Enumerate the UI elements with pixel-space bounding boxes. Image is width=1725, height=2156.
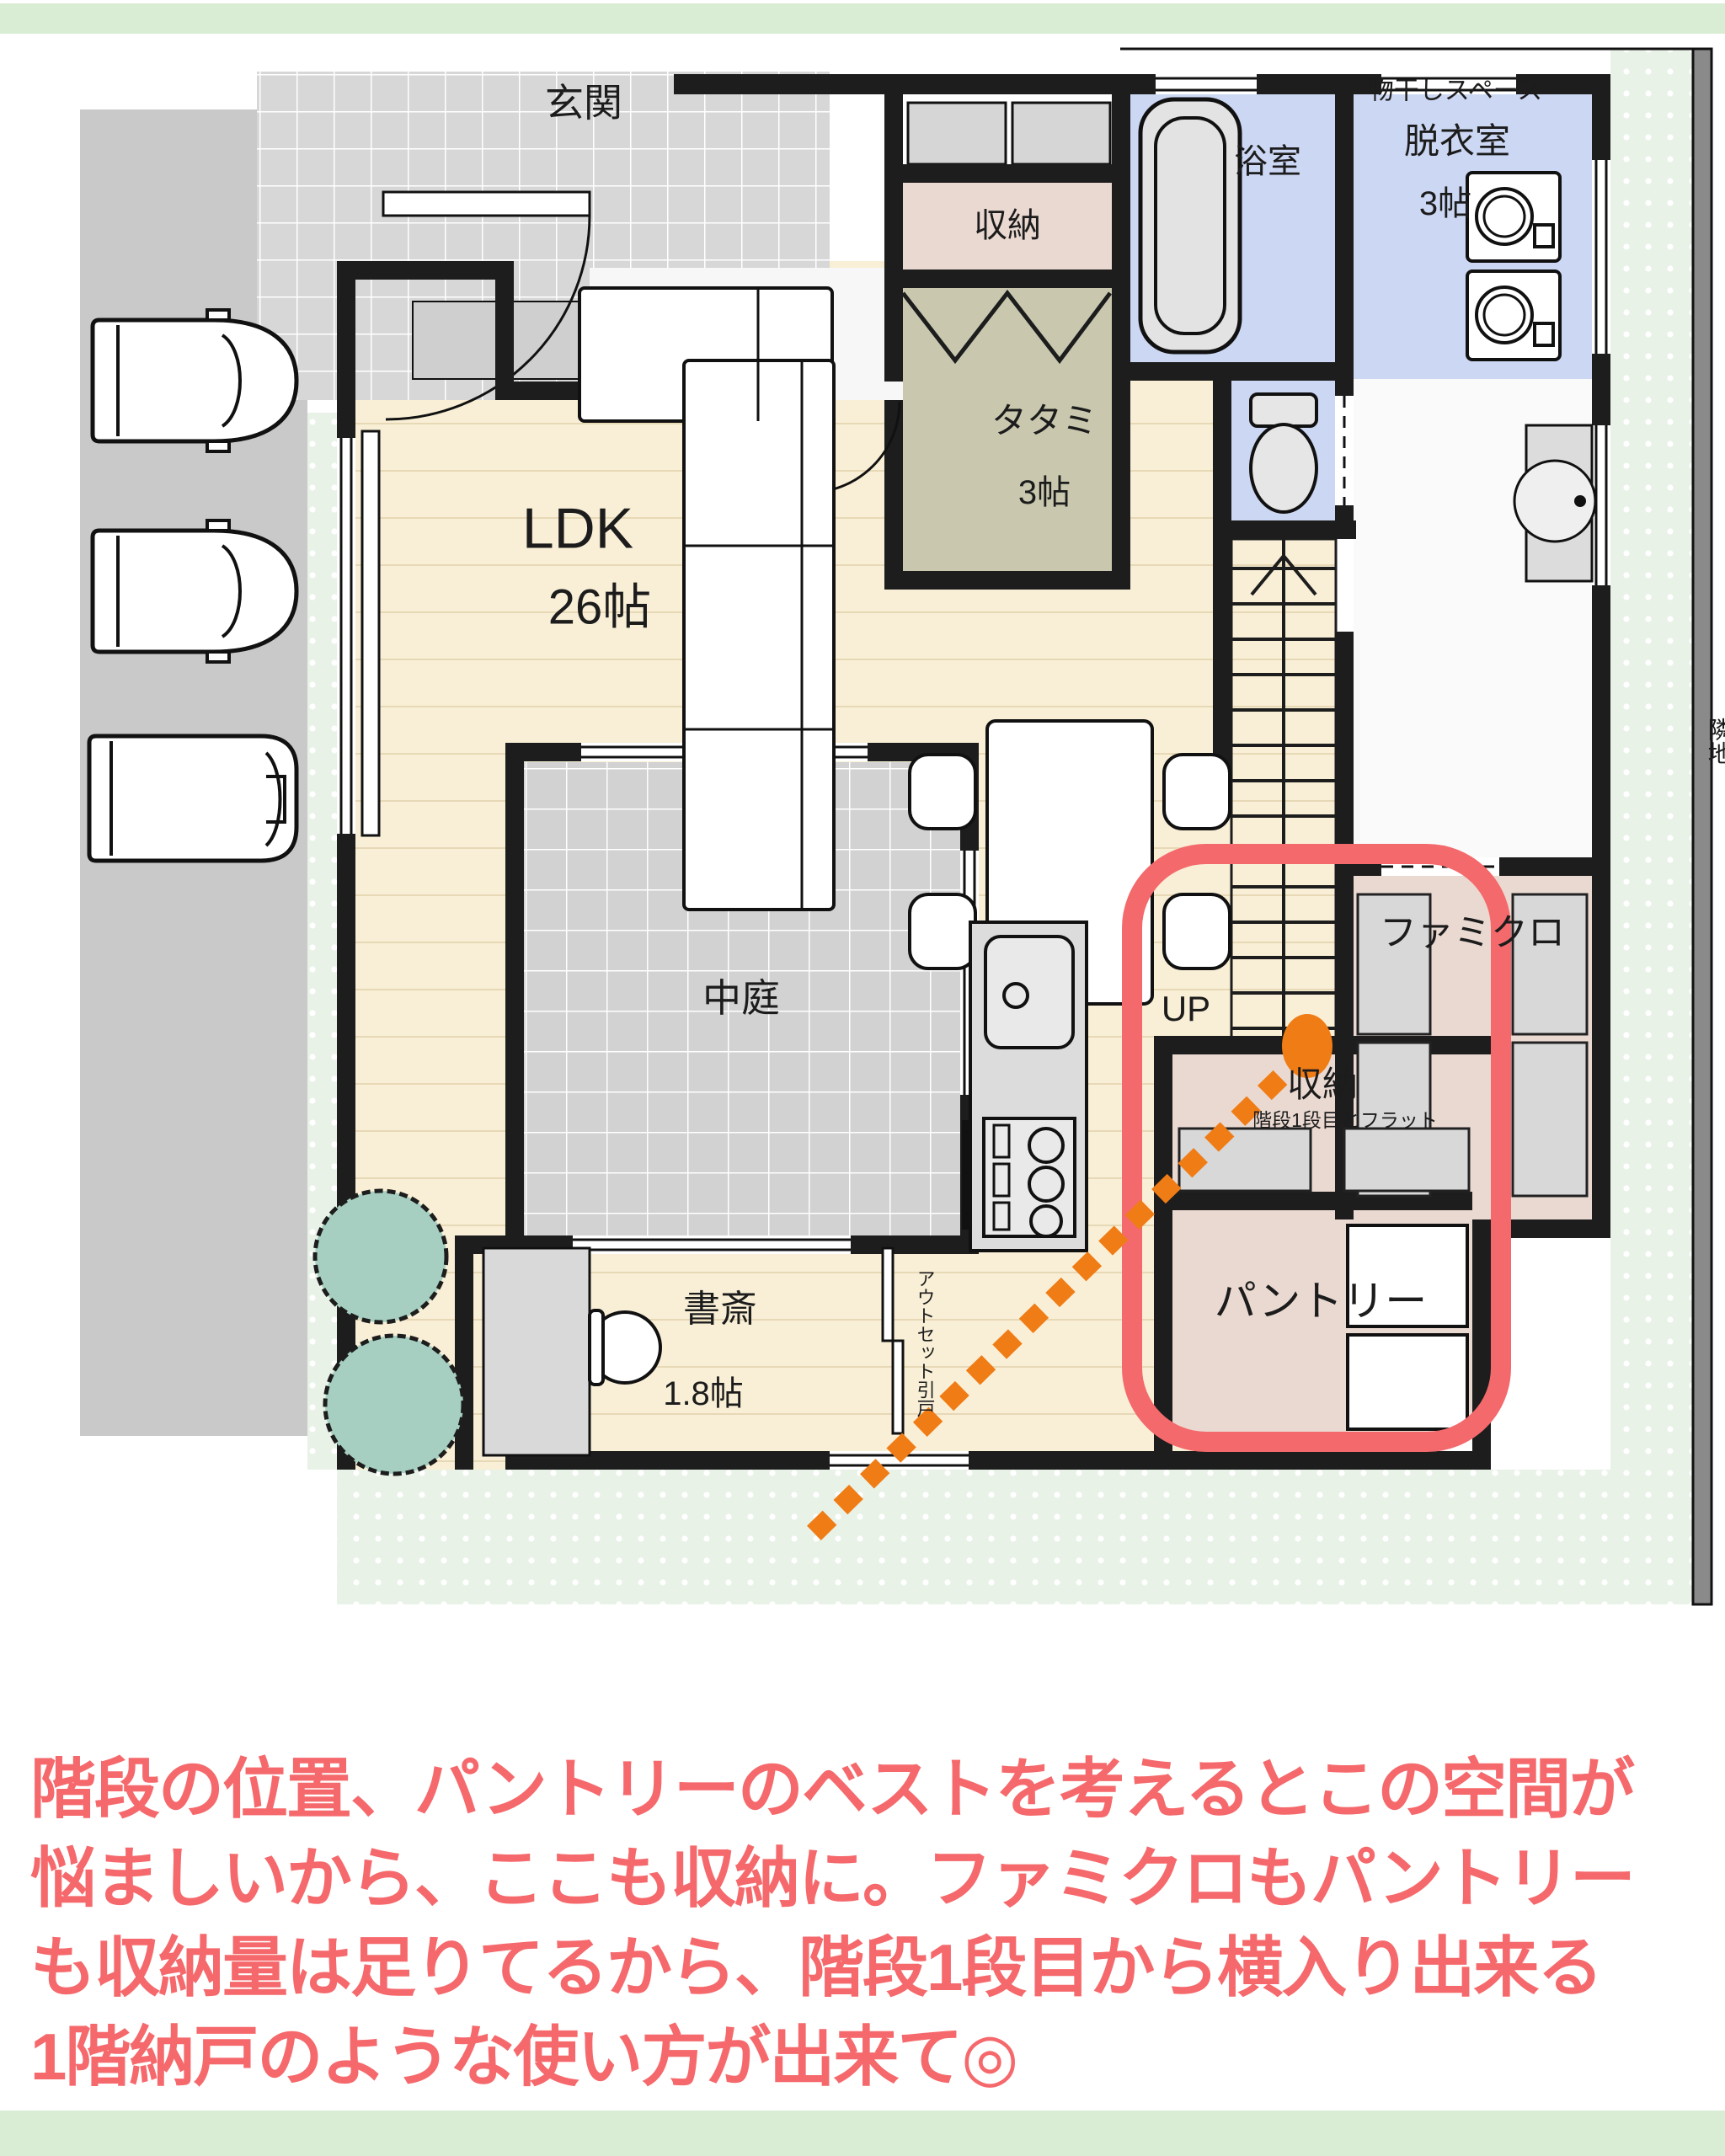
caption-line-4: 1階納戸のような使い方が出来て◎ — [30, 2004, 1017, 2099]
label-dressing-room: 脱衣室 — [1404, 123, 1510, 160]
label-drying-space: 物干しスペース — [1369, 77, 1542, 104]
label-ldk-size: 26帖 — [548, 583, 652, 634]
label-storage-stairs: 収納 — [1287, 1066, 1358, 1103]
label-family-closet: ファミクロ — [1380, 914, 1565, 953]
label-courtyard: 中庭 — [702, 978, 780, 1018]
caption-line-3: も収納量は足りてるから、階段1段目から横入り出来る — [30, 1915, 1601, 2009]
label-dressing-room-size: 3帖 — [1419, 186, 1471, 221]
label-tatami: タタミ — [991, 403, 1097, 440]
caption-line-1: 階段の位置、パントリーのベストを考えるとこの空間が — [30, 1737, 1633, 1831]
label-tatami-size: 3帖 — [1018, 475, 1071, 510]
label-storage-top: 収納 — [974, 208, 1041, 243]
post-image: 玄関 収納 浴室 物干しスペース 脱衣室 3帖 タタミ 3帖 LDK 26帖 中… — [0, 0, 1725, 2156]
label-stairs-up: UP — [1162, 990, 1210, 1027]
label-genkan: 玄関 — [545, 83, 622, 123]
label-study-size: 1.8帖 — [663, 1376, 744, 1412]
label-ldk: LDK — [522, 499, 633, 558]
label-bathroom: 浴室 — [1234, 144, 1301, 179]
label-outset-sliding-door: アウトセット引戸 — [915, 1269, 934, 1417]
label-storage-stairs-note: 階段1段目とフラット — [1252, 1110, 1438, 1130]
bottom-accent-bar — [0, 2111, 1725, 2156]
caption-line-2: 悩ましいから、ここも収納に。ファミクロもパントリー — [30, 1826, 1634, 1920]
label-neighbor-site: 隣地 — [1706, 718, 1725, 765]
label-pantry: パントリー — [1215, 1279, 1428, 1324]
label-study: 書斎 — [683, 1290, 757, 1329]
